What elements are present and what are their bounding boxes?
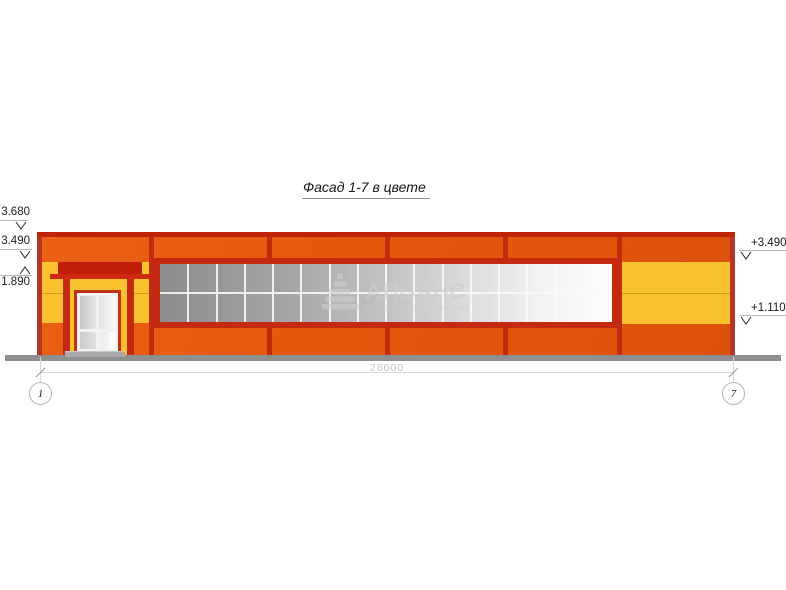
- door-pane-top-right: [99, 296, 115, 329]
- entrance-door: [77, 293, 118, 355]
- door-pane-bottom-right: [109, 332, 115, 349]
- facade-drawing-canvas: Фасад 1-7 в цвете АЛЬЯНС строительная ко…: [0, 0, 786, 590]
- panel-joint-line: [622, 293, 730, 294]
- elevation-mark-right-bottom: +1.110: [751, 302, 786, 315]
- watermark-name: АЛЬЯНС: [365, 278, 466, 305]
- watermark-subtitle: строительная компания: [366, 304, 469, 313]
- elevation-leader-line: [0, 275, 32, 276]
- elevation-mark-right-top: +3.490: [751, 237, 786, 250]
- door-pane-bottom-middle: [99, 332, 106, 349]
- axis-bubble-7: 7: [722, 382, 745, 405]
- axis-label: 1: [38, 388, 44, 400]
- door-sill: [65, 351, 125, 357]
- elevation-tick-down-icon: [19, 250, 31, 259]
- elevation-mark-left-bottom: 1.890: [0, 276, 30, 289]
- entrance-post-right: [127, 279, 134, 355]
- elevation-tick-down-icon: [15, 221, 27, 230]
- door-pane-top-left: [80, 296, 96, 329]
- dimension-label: 26000: [356, 362, 418, 374]
- axis-bubble-1: 1: [29, 382, 52, 405]
- entrance-post-left: [63, 279, 70, 355]
- elevation-tick-down-icon: [740, 251, 752, 260]
- door-pane-bottom-left: [80, 332, 96, 349]
- elevation-tick-up-icon: [19, 266, 31, 275]
- elevation-tick-down-icon: [740, 316, 752, 325]
- right-corner-trim: [730, 237, 735, 355]
- watermark-logo-icon: [321, 272, 359, 315]
- entrance-lintel: [58, 262, 142, 274]
- elevation-mark-left-middle: 3.490: [0, 235, 30, 248]
- elevation-mark-left-top: 3.680: [0, 206, 30, 219]
- drawing-title: Фасад 1-7 в цвете: [302, 179, 430, 199]
- axis-label: 7: [731, 388, 737, 400]
- yellow-panel-right: [622, 262, 730, 324]
